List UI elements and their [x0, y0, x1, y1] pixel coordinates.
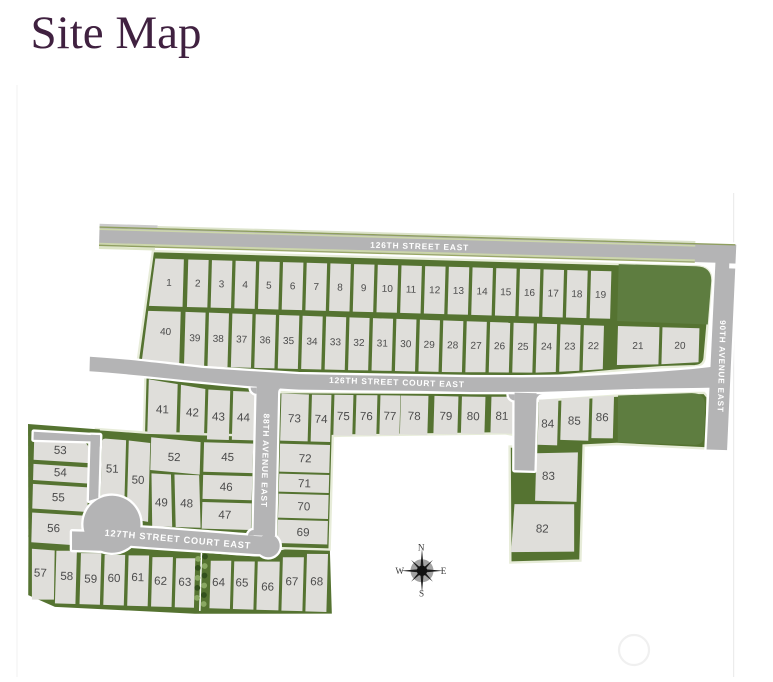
svg-text:35: 35	[283, 336, 295, 347]
svg-text:42: 42	[186, 406, 199, 419]
svg-text:71: 71	[298, 477, 311, 490]
svg-text:Site Map: Site Map	[31, 7, 202, 59]
svg-text:21: 21	[632, 341, 644, 352]
svg-text:51: 51	[106, 462, 119, 475]
svg-text:64: 64	[212, 576, 226, 589]
svg-text:1: 1	[166, 278, 172, 289]
svg-text:3: 3	[219, 279, 225, 290]
svg-text:58: 58	[60, 570, 73, 583]
svg-text:68: 68	[310, 575, 323, 588]
svg-text:70: 70	[297, 500, 310, 513]
svg-text:73: 73	[288, 412, 301, 425]
svg-text:36: 36	[259, 335, 271, 346]
svg-text:72: 72	[299, 452, 312, 465]
svg-text:82: 82	[536, 522, 549, 535]
svg-text:80: 80	[467, 410, 480, 423]
svg-text:32: 32	[353, 338, 365, 349]
svg-text:37: 37	[236, 334, 248, 345]
svg-text:17: 17	[547, 288, 559, 299]
svg-text:29: 29	[423, 340, 435, 351]
svg-text:23: 23	[564, 341, 576, 352]
svg-text:61: 61	[131, 571, 144, 584]
svg-text:76: 76	[360, 410, 373, 423]
svg-text:14: 14	[476, 286, 488, 297]
svg-text:50: 50	[131, 474, 144, 487]
svg-text:67: 67	[285, 575, 298, 588]
svg-text:54: 54	[54, 466, 68, 479]
svg-text:E: E	[441, 566, 447, 576]
svg-text:84: 84	[541, 417, 555, 430]
svg-text:55: 55	[52, 491, 65, 504]
svg-text:65: 65	[235, 576, 248, 589]
svg-text:77: 77	[383, 410, 396, 423]
svg-text:7: 7	[313, 282, 319, 293]
svg-text:13: 13	[453, 286, 465, 297]
svg-text:27: 27	[470, 341, 482, 352]
svg-text:41: 41	[156, 403, 169, 416]
svg-text:53: 53	[54, 444, 67, 457]
svg-text:75: 75	[337, 410, 350, 423]
svg-text:18: 18	[571, 289, 583, 300]
svg-text:6: 6	[290, 281, 296, 292]
svg-text:47: 47	[218, 509, 231, 522]
svg-text:56: 56	[47, 522, 60, 535]
svg-text:10: 10	[382, 284, 394, 295]
svg-text:79: 79	[439, 410, 452, 423]
svg-text:85: 85	[568, 414, 581, 427]
svg-text:69: 69	[296, 526, 309, 539]
svg-text:31: 31	[377, 338, 389, 349]
svg-text:66: 66	[261, 580, 274, 593]
svg-text:46: 46	[220, 481, 233, 494]
svg-text:20: 20	[674, 341, 686, 352]
svg-text:4: 4	[242, 280, 248, 291]
svg-text:W: W	[395, 566, 404, 576]
svg-text:83: 83	[542, 470, 555, 483]
svg-text:44: 44	[237, 411, 251, 424]
svg-text:39: 39	[189, 333, 201, 344]
svg-text:26: 26	[494, 341, 506, 352]
svg-text:8: 8	[337, 283, 343, 294]
svg-text:78: 78	[408, 410, 421, 423]
svg-text:40: 40	[160, 327, 172, 338]
svg-text:52: 52	[168, 451, 181, 464]
svg-text:81: 81	[495, 410, 508, 423]
svg-text:19: 19	[595, 290, 607, 301]
svg-text:15: 15	[500, 287, 512, 298]
svg-text:S: S	[419, 588, 424, 598]
svg-text:12: 12	[429, 285, 441, 296]
svg-text:43: 43	[212, 410, 225, 423]
svg-text:74: 74	[314, 413, 328, 426]
svg-text:63: 63	[178, 576, 191, 589]
svg-text:30: 30	[400, 339, 412, 350]
svg-text:45: 45	[221, 451, 234, 464]
svg-text:N: N	[418, 542, 425, 552]
svg-text:24: 24	[541, 342, 553, 353]
svg-text:62: 62	[154, 575, 167, 588]
svg-text:34: 34	[306, 336, 318, 347]
svg-text:86: 86	[596, 411, 609, 424]
svg-text:33: 33	[330, 337, 342, 348]
svg-text:48: 48	[180, 497, 193, 510]
svg-text:25: 25	[517, 342, 529, 353]
svg-text:38: 38	[213, 334, 225, 345]
svg-text:2: 2	[195, 279, 201, 290]
svg-text:57: 57	[34, 566, 47, 579]
svg-text:16: 16	[524, 288, 536, 299]
svg-text:59: 59	[84, 572, 97, 585]
svg-text:11: 11	[406, 284, 417, 295]
svg-text:49: 49	[155, 496, 168, 509]
svg-text:5: 5	[266, 281, 272, 292]
svg-text:9: 9	[361, 283, 367, 294]
svg-text:28: 28	[447, 340, 459, 351]
svg-text:22: 22	[588, 341, 600, 352]
svg-text:60: 60	[107, 572, 120, 585]
